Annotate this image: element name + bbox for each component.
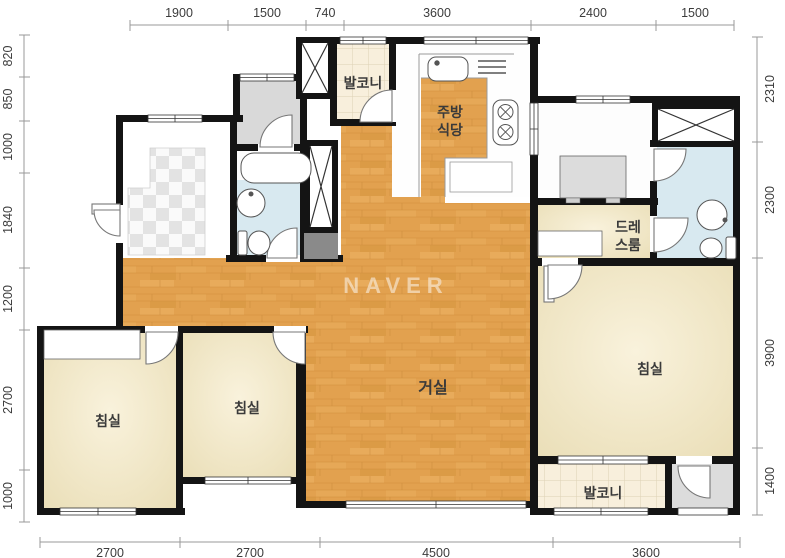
dim-bottom-2: 4500 xyxy=(422,546,450,558)
window-living-bottom xyxy=(346,501,526,508)
label-living-room: 거실 xyxy=(418,379,447,397)
window-balcony-bottom xyxy=(554,508,648,515)
naver-watermark: NAVER xyxy=(343,273,448,298)
floor-plan-viewer: 발코니 주방 식당 드레 스룸 거실 침실 침실 침실 발코니 NAVER 19… xyxy=(0,0,785,558)
dim-top-1: 1500 xyxy=(253,6,281,20)
master-bedroom-floor xyxy=(538,266,733,456)
bathtub xyxy=(241,153,311,183)
window-bedroom2-bottom xyxy=(205,477,291,484)
shaft-top-left xyxy=(296,37,334,99)
dim-left-1: 850 xyxy=(1,89,15,110)
window-right-top xyxy=(576,96,630,103)
bathroom1-toilet xyxy=(238,231,270,255)
shaft-duct-center xyxy=(304,140,338,259)
window-utility-top xyxy=(240,74,294,81)
dim-bottom-1: 2700 xyxy=(236,546,264,558)
dim-top-2: 740 xyxy=(315,6,336,20)
window-balcony-top xyxy=(340,37,386,44)
label-kitchen-line1: 주방 xyxy=(437,104,463,120)
dress-room-shelf xyxy=(538,231,602,256)
label-bedroom2: 침실 xyxy=(234,400,260,416)
dim-right-0: 2310 xyxy=(763,75,777,103)
label-balcony-bottom: 발코니 xyxy=(584,485,623,501)
label-dress-room-line2: 스룸 xyxy=(615,237,641,253)
window-ac-room-bottom xyxy=(678,508,728,515)
dim-left-0: 820 xyxy=(1,46,15,67)
opening-kitchen-side xyxy=(530,103,538,155)
duct-gray-box xyxy=(304,233,338,259)
window-kitchen-top xyxy=(424,37,528,44)
label-dress-room-line1: 드레 xyxy=(615,219,641,235)
bathroom2-sink-dot xyxy=(723,218,727,222)
dim-bottom-3: 3600 xyxy=(632,546,660,558)
dim-top-0: 1900 xyxy=(165,6,193,20)
window-bedroom1-bottom xyxy=(60,508,136,515)
bathroom2-toilet xyxy=(700,237,736,259)
dim-left-5: 2700 xyxy=(1,386,15,414)
dim-top-3: 3600 xyxy=(423,6,451,20)
label-balcony-top: 발코니 xyxy=(344,75,383,91)
dim-bottom-0: 2700 xyxy=(96,546,124,558)
kitchen-stove xyxy=(493,100,518,145)
dim-right-3: 1400 xyxy=(763,467,777,495)
window-master-balcony xyxy=(558,456,648,464)
window-entry-top xyxy=(148,115,202,122)
kitchen-counter-return xyxy=(450,162,512,192)
dim-top-4: 2400 xyxy=(579,6,607,20)
bathroom1-sink-dot xyxy=(249,192,253,196)
dim-left-2: 1000 xyxy=(1,133,15,161)
label-bedroom1: 침실 xyxy=(95,413,121,429)
bedroom1-closet xyxy=(44,330,140,359)
label-kitchen-line2: 식당 xyxy=(437,122,463,138)
bathroom2-sink xyxy=(697,200,727,230)
floor-plan-drawing: 발코니 주방 식당 드레 스룸 거실 침실 침실 침실 발코니 NAVER 19… xyxy=(0,0,785,558)
dim-left-6: 1000 xyxy=(1,482,15,510)
door-entrance xyxy=(92,204,120,236)
dim-right-2: 3900 xyxy=(763,339,777,367)
dim-top-5: 1500 xyxy=(681,6,709,20)
dim-left-3: 1840 xyxy=(1,206,15,234)
wardrobe xyxy=(560,156,626,203)
shaft-top-right xyxy=(652,103,740,147)
label-master-bedroom: 침실 xyxy=(637,361,663,377)
dim-right-1: 2300 xyxy=(763,186,777,214)
dim-left-4: 1200 xyxy=(1,285,15,313)
kitchen-sink xyxy=(428,57,468,81)
